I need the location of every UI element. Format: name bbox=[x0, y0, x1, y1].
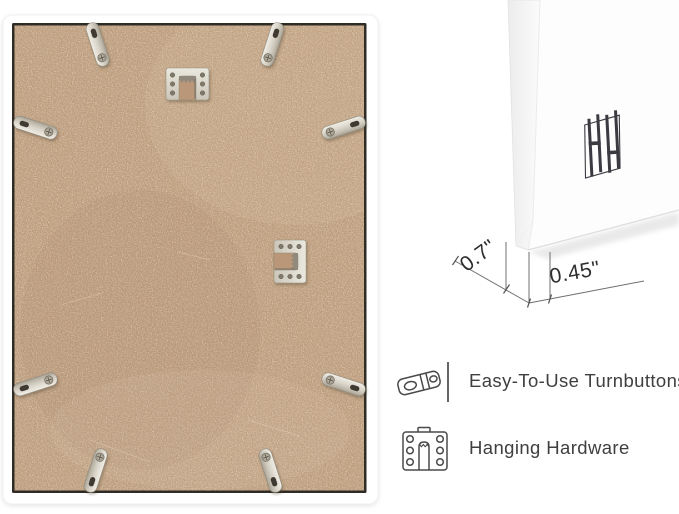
feature-row-hanging-hardware: Hanging Hardware bbox=[396, 422, 630, 474]
frame-corner-photo bbox=[508, 0, 679, 259]
sawtooth-hanger-icon bbox=[396, 422, 454, 474]
feature-label: Hanging Hardware bbox=[469, 437, 630, 459]
feature-label: Easy-To-Use Turnbuttons bbox=[469, 370, 679, 392]
turnbutton-icon bbox=[396, 356, 454, 406]
sawtooth-hanger-top bbox=[166, 68, 209, 100]
frame-front-face bbox=[528, 0, 679, 250]
sawtooth-hanger-middle bbox=[274, 240, 306, 283]
feature-row-turnbuttons: Easy-To-Use Turnbuttons bbox=[396, 356, 679, 406]
product-infographic: 0.7" 0.45" Easy-To-Use Turnbuttons bbox=[0, 0, 679, 514]
